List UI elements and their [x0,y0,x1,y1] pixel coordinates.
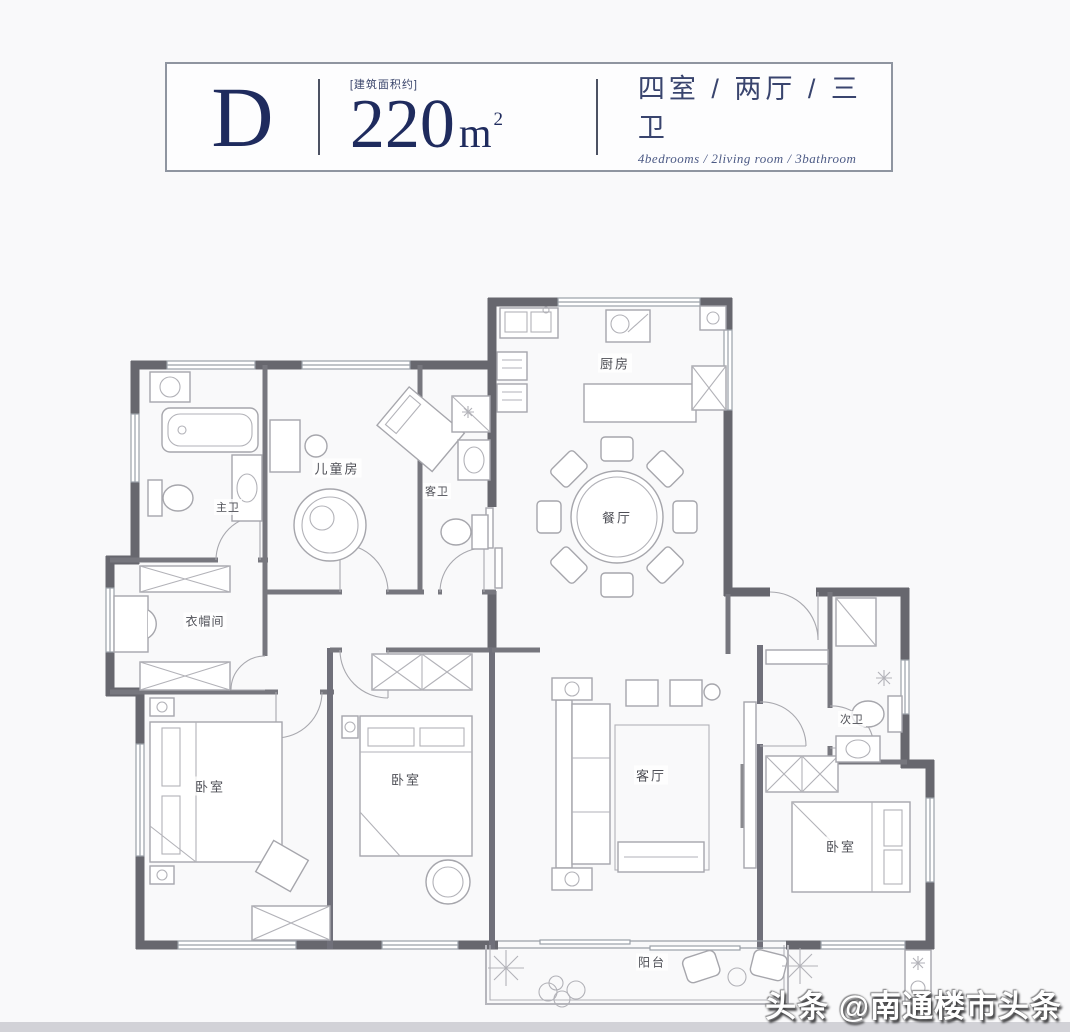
room-label-bedroom-right: 卧室 [824,837,858,856]
room-label-bedroom-left: 卧室 [193,777,227,796]
floorplan-drawing [0,0,1070,1032]
room-label-living-room: 客厅 [634,766,668,785]
master-bath-fixtures [148,372,262,521]
room-label-second-bath: 次卫 [838,711,866,727]
bedroom-right-furniture [766,756,910,892]
room-label-balcony: 阳台 [636,954,668,971]
room-label-guest-bath: 客卫 [423,483,451,499]
bedroom-left-furniture [150,698,330,940]
room-label-dining: 餐厅 [600,508,634,527]
room-label-bedroom-middle: 卧室 [389,770,423,789]
room-label-cloakroom: 衣帽间 [183,613,226,630]
room-label-kitchen: 厨房 [598,354,632,373]
kids-room-furniture [270,387,464,561]
room-label-master-bath: 主卫 [214,499,242,515]
watermark-text: 头条 @南通楼市头条 [765,981,1062,1026]
room-label-kids-room: 儿童房 [312,459,361,478]
second-bath-fixtures [836,598,902,762]
floorplan-page: D [建筑面积约] 220 m 2 四室 / 两厅 / 三卫 4bedrooms… [0,0,1070,1032]
